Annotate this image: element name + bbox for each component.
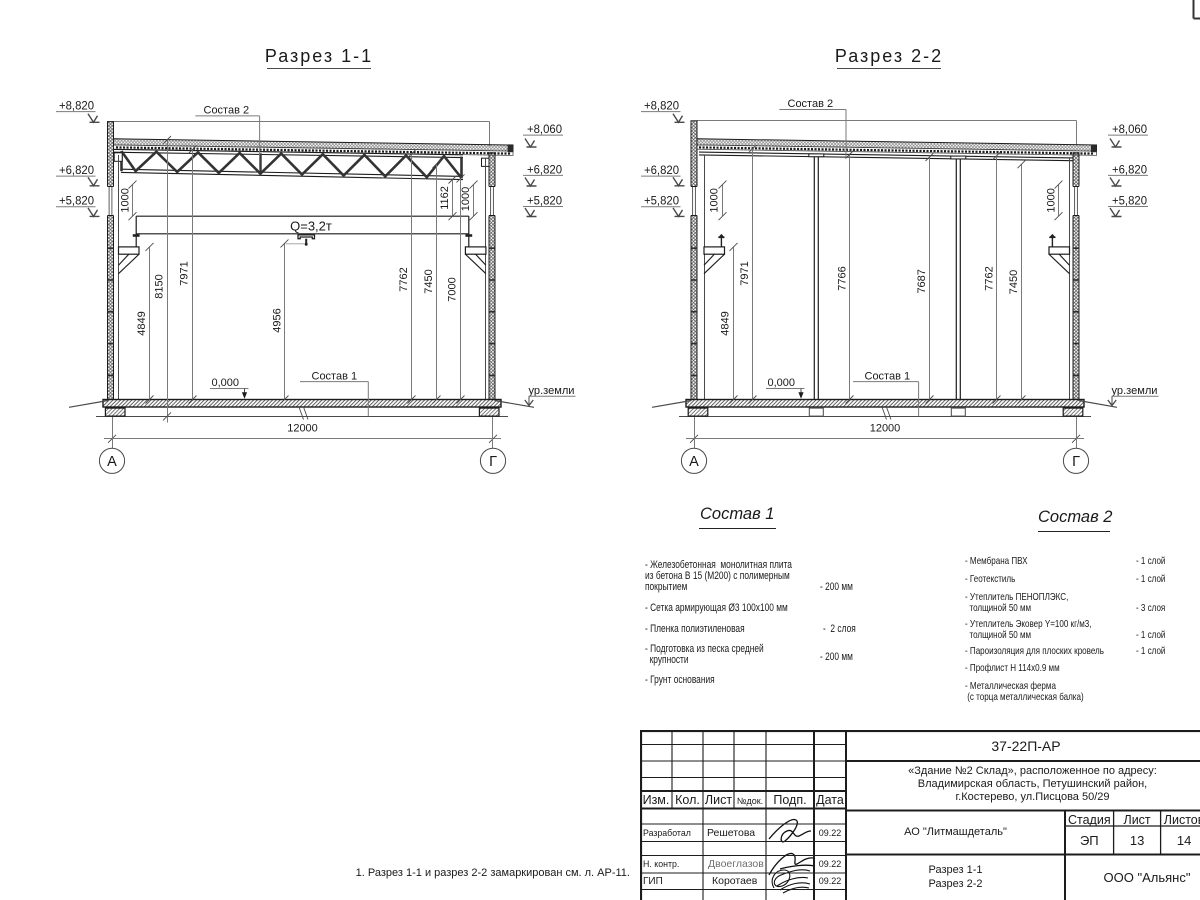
svg-text:4956: 4956 [272,308,284,332]
svg-text:+5,820: +5,820 [644,196,679,208]
svg-text:7762: 7762 [983,266,995,290]
svg-text:12000: 12000 [870,422,901,434]
svg-text:Разрез 2-2: Разрез 2-2 [835,46,943,66]
svg-text:Г: Г [1072,454,1080,470]
svg-text:+6,820: +6,820 [59,165,94,177]
svg-text:Состав 1: Состав 1 [312,370,358,382]
svg-text:12000: 12000 [287,422,318,434]
svg-text:А: А [107,454,117,470]
svg-text:1162: 1162 [439,186,451,210]
svg-text:Q=3,2т: Q=3,2т [290,219,332,234]
svg-text:+8,060: +8,060 [1112,124,1147,136]
svg-text:7766: 7766 [836,266,848,290]
svg-text:+8,820: +8,820 [59,101,94,113]
svg-text:4849: 4849 [136,311,148,335]
svg-text:1000: 1000 [119,188,131,212]
svg-text:+6,820: +6,820 [1112,164,1147,176]
svg-text:+5,820: +5,820 [59,196,94,208]
svg-text:7000: 7000 [447,277,459,301]
svg-text:+6,820: +6,820 [527,164,562,176]
svg-text:0,000: 0,000 [212,377,240,389]
svg-text:+5,820: +5,820 [527,195,562,207]
svg-text:7450: 7450 [1008,270,1020,294]
svg-text:7971: 7971 [739,261,751,285]
svg-text:1000: 1000 [709,188,721,212]
svg-text:1000: 1000 [1045,188,1057,212]
svg-text:1000: 1000 [460,187,472,211]
svg-text:+8,060: +8,060 [527,124,562,136]
svg-text:7450: 7450 [423,269,435,293]
svg-text:А: А [689,454,699,470]
svg-text:7762: 7762 [398,267,410,291]
svg-text:+6,820: +6,820 [644,165,679,177]
svg-text:ур.земли: ур.земли [529,385,575,397]
svg-text:Состав 1: Состав 1 [865,370,911,382]
svg-text:+8,820: +8,820 [644,101,679,113]
svg-text:7971: 7971 [179,261,191,285]
svg-text:7687: 7687 [916,269,928,293]
svg-text:Состав 2: Состав 2 [788,98,834,110]
svg-text:8150: 8150 [154,274,166,298]
svg-text:+5,820: +5,820 [1112,195,1147,207]
svg-text:Состав 2: Состав 2 [204,105,250,117]
svg-text:Г: Г [489,454,497,470]
svg-text:Разрез 1-1: Разрез 1-1 [265,46,373,66]
svg-text:4849: 4849 [720,311,732,335]
svg-text:0,000: 0,000 [768,377,796,389]
svg-text:ур.земли: ур.земли [1112,385,1158,397]
